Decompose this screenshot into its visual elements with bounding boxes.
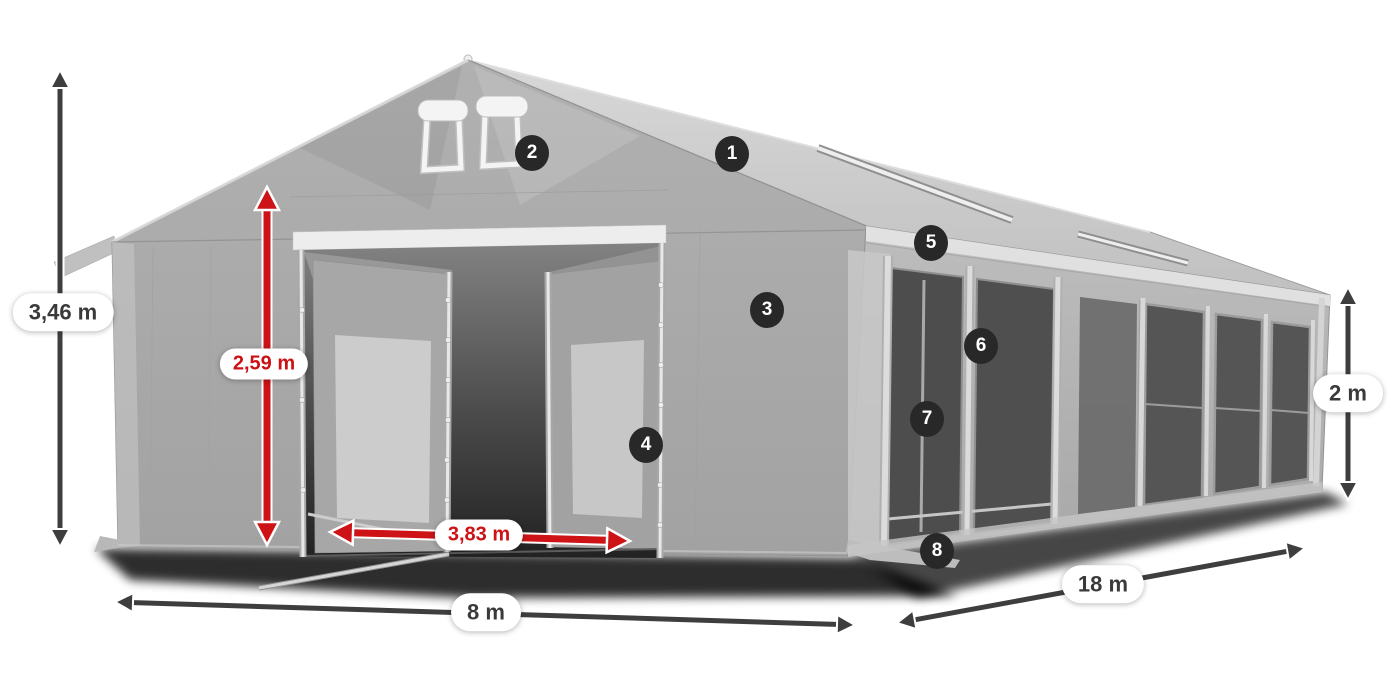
dimension-label-total-height: 3,46 m — [13, 293, 114, 331]
feature-marker-1: 1 — [715, 136, 749, 172]
feature-marker-4: 4 — [629, 427, 663, 463]
feature-marker-3: 3 — [750, 292, 784, 328]
tent-illustration — [0, 0, 1400, 700]
feature-marker-7: 7 — [910, 401, 944, 437]
tent-dimensions-diagram: 3,46 m 2,59 m 3,83 m 8 m 18 m 2 m 1 2 3 … — [0, 0, 1400, 700]
feature-marker-5: 5 — [914, 225, 948, 261]
dimension-label-side-length: 18 m — [1062, 565, 1144, 603]
feature-marker-6: 6 — [964, 328, 998, 364]
dimension-label-entrance-width: 3,83 m — [435, 520, 523, 551]
dimension-label-front-width: 8 m — [451, 593, 521, 631]
dimension-label-entrance-height: 2,59 m — [220, 349, 308, 380]
dimension-label-side-height: 2 m — [1313, 374, 1383, 412]
feature-marker-2: 2 — [515, 135, 549, 171]
feature-marker-8: 8 — [920, 533, 954, 569]
